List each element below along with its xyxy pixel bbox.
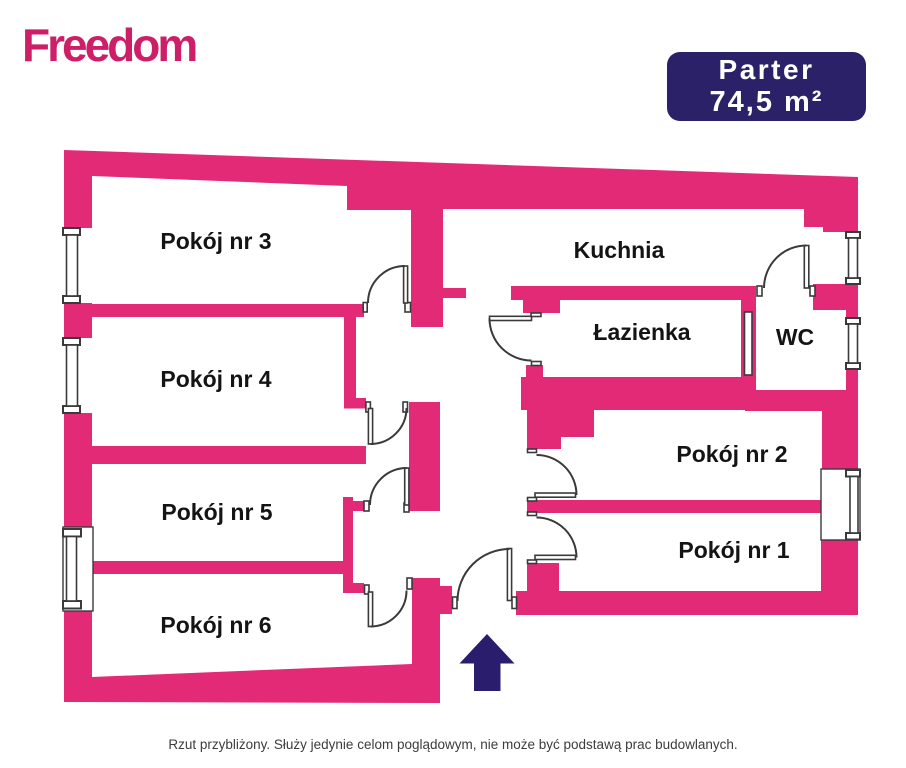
svg-text:Łazienka: Łazienka (593, 319, 690, 345)
svg-text:Pokój nr 1: Pokój nr 1 (678, 537, 789, 563)
svg-text:Pokój nr 4: Pokój nr 4 (160, 366, 271, 392)
svg-text:WC: WC (776, 324, 814, 350)
svg-text:Pokój nr 2: Pokój nr 2 (676, 441, 787, 467)
svg-text:Pokój nr 3: Pokój nr 3 (160, 228, 271, 254)
svg-text:Pokój nr 6: Pokój nr 6 (160, 612, 271, 638)
svg-text:Kuchnia: Kuchnia (574, 237, 665, 263)
svg-text:Pokój nr 5: Pokój nr 5 (161, 499, 272, 525)
